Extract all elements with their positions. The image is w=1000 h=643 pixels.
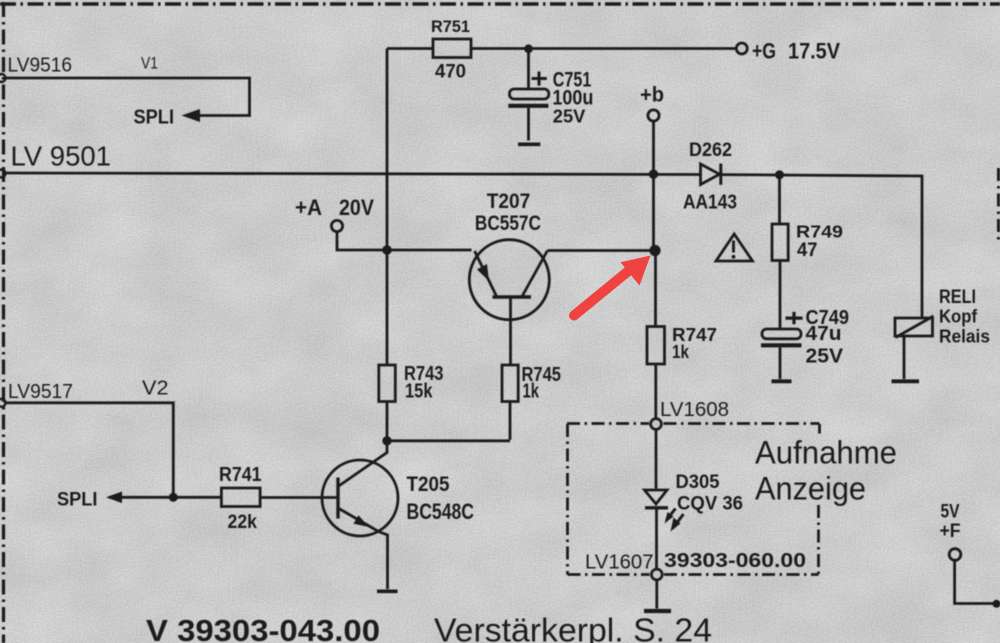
svg-text:V2: V2 <box>142 378 169 400</box>
svg-text:1k: 1k <box>523 381 540 403</box>
svg-text:BC557C: BC557C <box>475 212 541 235</box>
svg-text:25V: 25V <box>806 346 844 368</box>
svg-text:CQV 36: CQV 36 <box>677 493 743 515</box>
svg-text:47u: 47u <box>806 323 842 345</box>
svg-text:Kopf: Kopf <box>939 306 978 327</box>
svg-text:LV1608: LV1608 <box>660 399 729 421</box>
svg-text:V1: V1 <box>141 54 158 73</box>
svg-text:R749: R749 <box>796 222 843 242</box>
svg-text:LV1607: LV1607 <box>585 552 654 574</box>
svg-text:LV9516: LV9516 <box>8 55 73 77</box>
svg-text:Verstärkerpl. S. 24: Verstärkerpl. S. 24 <box>434 612 712 643</box>
svg-text:LV9517: LV9517 <box>8 380 73 403</box>
svg-text:D305: D305 <box>676 471 720 493</box>
svg-text:15k: 15k <box>405 381 433 403</box>
svg-text:LV 9501: LV 9501 <box>11 141 112 172</box>
svg-text:Aufnahme: Aufnahme <box>755 435 897 471</box>
svg-text:Anzeige: Anzeige <box>755 471 866 507</box>
svg-text:T207: T207 <box>487 190 531 213</box>
svg-text:+A: +A <box>295 195 322 220</box>
svg-text:T205: T205 <box>407 473 450 496</box>
svg-text:SPLI: SPLI <box>57 489 98 511</box>
svg-text:+G: +G <box>752 39 776 64</box>
svg-text:470: 470 <box>435 62 466 83</box>
svg-text:+F: +F <box>940 521 961 542</box>
svg-text:+b: +b <box>640 84 664 107</box>
svg-text:V 39303-043.00: V 39303-043.00 <box>146 613 380 643</box>
svg-text:BC548C: BC548C <box>407 499 475 524</box>
svg-text:47: 47 <box>797 240 818 261</box>
svg-text:17.5V: 17.5V <box>788 39 840 64</box>
svg-text:AA143: AA143 <box>683 192 737 214</box>
svg-text:22k: 22k <box>228 512 258 533</box>
svg-text:20V: 20V <box>339 195 374 220</box>
svg-text:25V: 25V <box>553 106 586 127</box>
svg-text:39303-060.00: 39303-060.00 <box>664 549 806 572</box>
svg-text:D262: D262 <box>689 140 732 161</box>
svg-text:Relais: Relais <box>939 326 990 347</box>
svg-text:SPLI: SPLI <box>134 107 175 129</box>
svg-text:1k: 1k <box>672 342 690 362</box>
svg-text:R741: R741 <box>219 464 262 486</box>
svg-text:R751: R751 <box>431 18 470 36</box>
svg-text:5V: 5V <box>941 502 960 523</box>
